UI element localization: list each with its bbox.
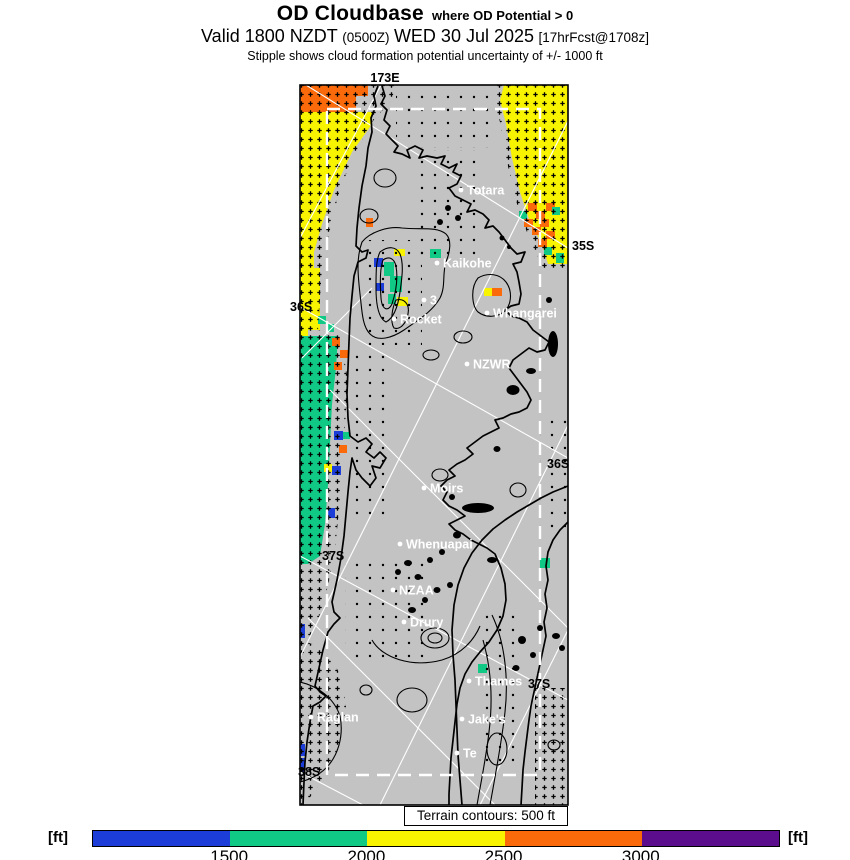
place-label: NZAA: [399, 584, 434, 598]
island-blob: [552, 633, 560, 639]
colorbar-segment-green: [230, 831, 367, 846]
island-blob: [437, 219, 443, 225]
island-blob: [434, 587, 441, 593]
graticule-label: 36S: [547, 457, 569, 471]
place-marker: [465, 362, 470, 367]
stipple-region-sparse: [396, 88, 496, 148]
place-label: Rocket: [400, 313, 443, 327]
island-blob: [408, 607, 416, 613]
place-label: Te: [463, 747, 477, 761]
place-label: Thames: [475, 675, 522, 689]
colorbar-segment-yellow: [367, 831, 504, 846]
island-blob: [559, 645, 565, 651]
place-label: Whangarei: [493, 307, 557, 321]
graticule-label: 38S: [298, 765, 320, 779]
place-label: Drury: [410, 616, 443, 630]
island-blob: [546, 297, 552, 303]
graticule-label: 173E: [370, 71, 399, 85]
place-marker: [391, 588, 396, 593]
island-blob: [445, 205, 451, 211]
forecast-map: TotaraKaikohe3WhangareiRocketNZWRMoirsWh…: [0, 0, 850, 860]
place-marker: [467, 679, 472, 684]
island-blob: [395, 569, 401, 575]
colorbar-segment-purple: [642, 831, 779, 846]
cloudbase-cell-orange: [492, 288, 502, 296]
place-label: Moirs: [430, 482, 463, 496]
place-marker: [309, 715, 314, 720]
island-blob: [447, 582, 453, 588]
place-label: Kaikohe: [443, 257, 492, 271]
terrain-contour-note: Terrain contours: 500 ft: [404, 806, 568, 826]
colorbar-segment-blue: [93, 831, 230, 846]
island-blob: [427, 557, 433, 563]
island-blob: [455, 215, 461, 221]
cloudbase-cell-yellow: [484, 288, 492, 296]
island-blob: [462, 503, 494, 513]
place-label: Raglan: [317, 711, 359, 725]
graticule-label: 36S: [290, 300, 312, 314]
cloudbase-colorbar: [92, 830, 780, 847]
cloudbase-cell-green: [540, 558, 550, 568]
colorbar-segment-orange: [505, 831, 642, 846]
colorbar-tick-label: 1500: [210, 847, 248, 860]
place-marker: [422, 486, 427, 491]
island-blob: [487, 557, 497, 563]
place-label: NZWR: [473, 358, 511, 372]
island-blob: [500, 236, 505, 241]
place-marker: [392, 317, 397, 322]
place-label: Whenuapai: [406, 538, 473, 552]
forecast-page: OD Cloudbase where OD Potential > 0 Vali…: [0, 0, 850, 860]
colorbar-unit-left: [ft]: [48, 829, 68, 846]
colorbar-tick-label: 2500: [485, 847, 523, 860]
island-blob: [404, 560, 412, 566]
island-blob: [513, 665, 520, 671]
island-blob: [526, 368, 536, 374]
island-blob: [548, 331, 558, 357]
stipple-region-sparse: [352, 350, 390, 520]
place-label: Totara: [467, 184, 505, 198]
place-marker: [460, 717, 465, 722]
island-blob: [494, 446, 501, 452]
place-marker: [402, 620, 407, 625]
stipple-region-sparse: [540, 420, 568, 530]
graticule-label: 37S: [322, 549, 344, 563]
stipple-region-sparse: [360, 240, 422, 345]
island-blob: [537, 625, 543, 631]
place-marker: [398, 542, 403, 547]
place-marker: [422, 298, 427, 303]
place-marker: [459, 188, 464, 193]
colorbar-ticks: 1500200025003000: [92, 847, 778, 860]
place-marker: [435, 261, 440, 266]
island-blob: [507, 385, 520, 395]
graticule-label: 35S: [572, 239, 594, 253]
island-blob: [422, 597, 428, 603]
graticule-label: 37S: [528, 677, 550, 691]
island-blob: [530, 652, 536, 658]
place-marker: [485, 311, 490, 316]
island-blob: [507, 245, 511, 249]
island-blob: [415, 574, 422, 580]
island-blob: [518, 636, 526, 644]
place-label: Jake's: [468, 713, 506, 727]
colorbar-tick-label: 2000: [347, 847, 385, 860]
colorbar-tick-label: 3000: [622, 847, 660, 860]
colorbar-unit-right: [ft]: [788, 829, 808, 846]
map-canvas: TotaraKaikohe3WhangareiRocketNZWRMoirsWh…: [300, 85, 568, 805]
place-label: 3: [430, 294, 437, 308]
place-marker: [455, 751, 460, 756]
